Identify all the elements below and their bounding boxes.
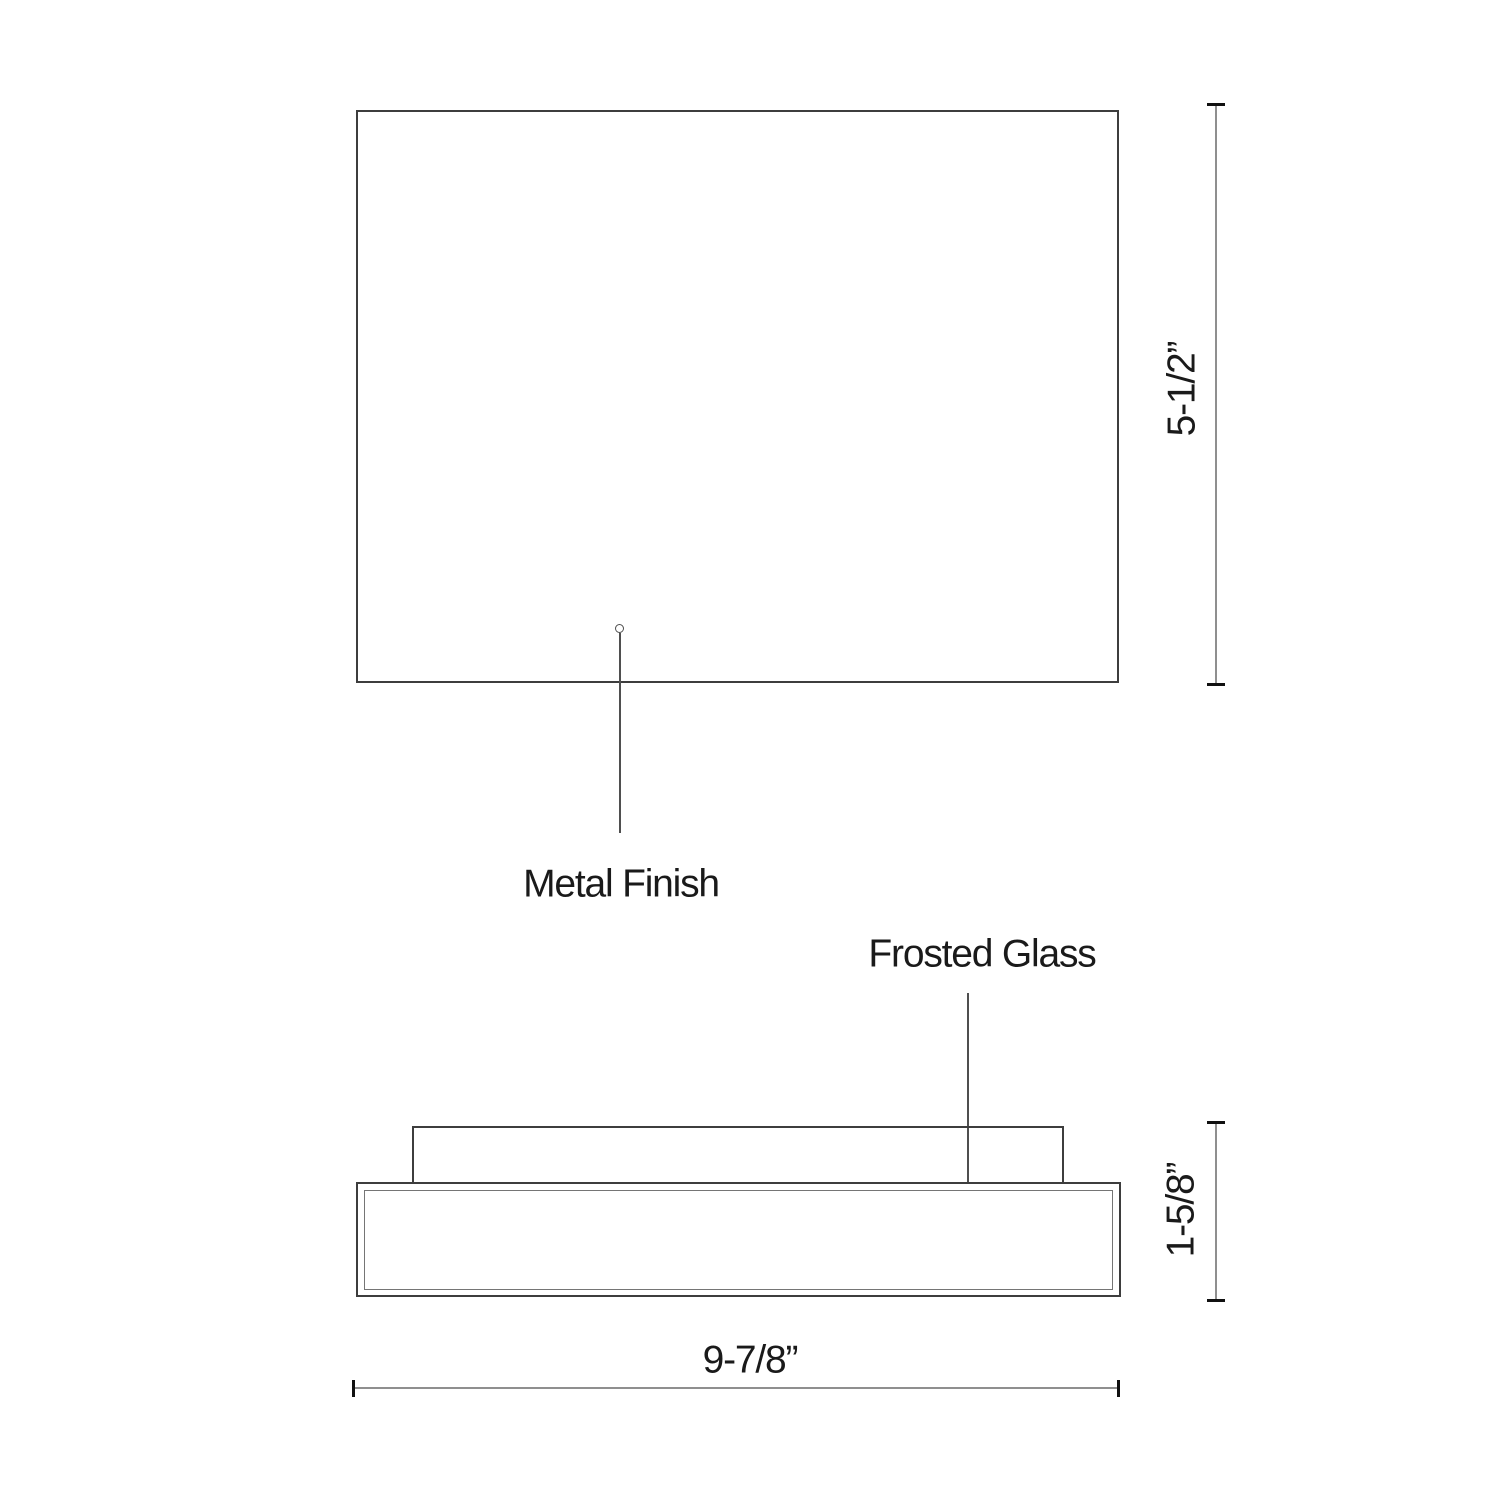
technical-drawing-canvas: 5-1/2” Metal Finish Frosted Glass 1-5/8”… <box>0 0 1500 1500</box>
height-dimension-label: 5-1/2” <box>1163 342 1202 437</box>
metal-finish-label: Metal Finish <box>523 865 719 904</box>
frosted-glass-label: Frosted Glass <box>868 935 1095 974</box>
depth-dimension-tick-bottom <box>1207 1299 1225 1302</box>
depth-dimension-label: 1-5/8” <box>1162 1163 1201 1258</box>
front-view-outline <box>356 110 1119 683</box>
side-view-glass-inner-outline <box>364 1190 1113 1290</box>
width-dimension-tick-right <box>1117 1380 1120 1397</box>
side-view-mounting-plate-outline <box>412 1126 1064 1184</box>
height-dimension-tick-bottom <box>1207 683 1225 686</box>
metal-finish-anchor-circle <box>615 624 624 633</box>
depth-dimension-tick-top <box>1207 1121 1225 1124</box>
width-dimension-tick-left <box>352 1380 355 1397</box>
depth-dimension-line <box>1215 1123 1217 1301</box>
metal-finish-leader-line <box>619 633 621 833</box>
width-dimension-label: 9-7/8” <box>703 1341 798 1380</box>
height-dimension-line <box>1215 105 1217 685</box>
width-dimension-line <box>353 1387 1119 1389</box>
height-dimension-tick-top <box>1207 103 1225 106</box>
